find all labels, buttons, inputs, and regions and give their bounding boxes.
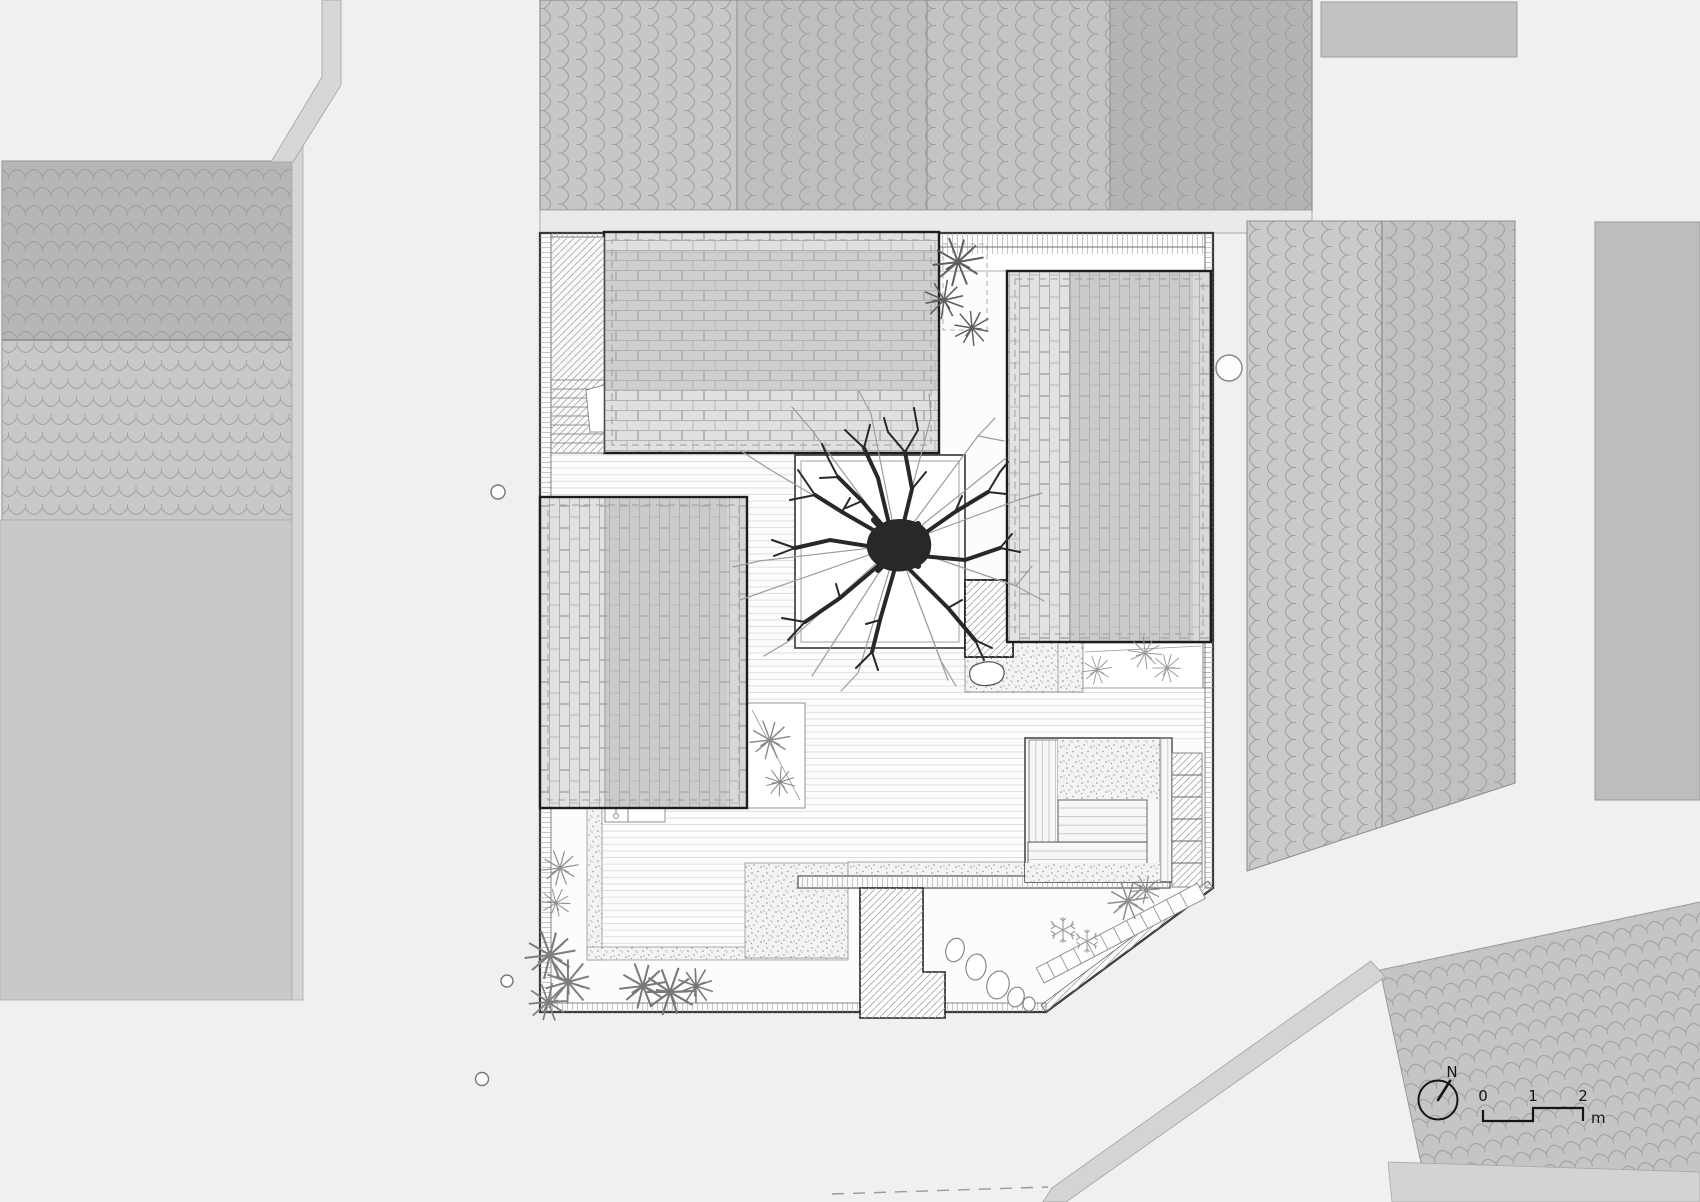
deck-bench: [1058, 800, 1147, 842]
scale-unit: m: [1591, 1109, 1606, 1127]
main-roof-east: [1007, 271, 1211, 642]
scale-tick-0: 0: [1478, 1087, 1488, 1105]
scale-tick-2: 2: [1578, 1087, 1588, 1105]
well-circle-east: [1216, 355, 1242, 381]
neighbor-roof-north: [540, 0, 1312, 233]
boundary-wall-west: [292, 140, 303, 1000]
manhole-southwest-1: [501, 975, 513, 987]
site-plan-canvas: N 0 1 2 m: [0, 0, 1700, 1202]
neighbor-yard-west: [0, 520, 292, 1000]
neighbor-slab-east: [1595, 222, 1700, 800]
drain-boxes: [605, 808, 665, 822]
neighbor-roof-west: [2, 161, 292, 520]
manhole-west: [491, 485, 505, 499]
neighbor-roof-east: [1247, 221, 1515, 871]
neighbor-slab-northeast: [1321, 2, 1517, 57]
engawa-deck: [1025, 738, 1172, 882]
planter-east: [1083, 643, 1203, 688]
main-roof-west: [540, 497, 747, 808]
street-gutter-north: [540, 210, 1312, 233]
stair-east: [1172, 753, 1202, 887]
north-label: N: [1446, 1063, 1457, 1081]
garden-stone: [970, 662, 1004, 686]
side-roof-stair-strip: [551, 237, 604, 453]
main-roof-north: [604, 232, 939, 453]
entry-stone-platform: [965, 580, 1013, 657]
scale-tick-1: 1: [1528, 1087, 1538, 1105]
manhole-southwest-2: [476, 1073, 489, 1086]
